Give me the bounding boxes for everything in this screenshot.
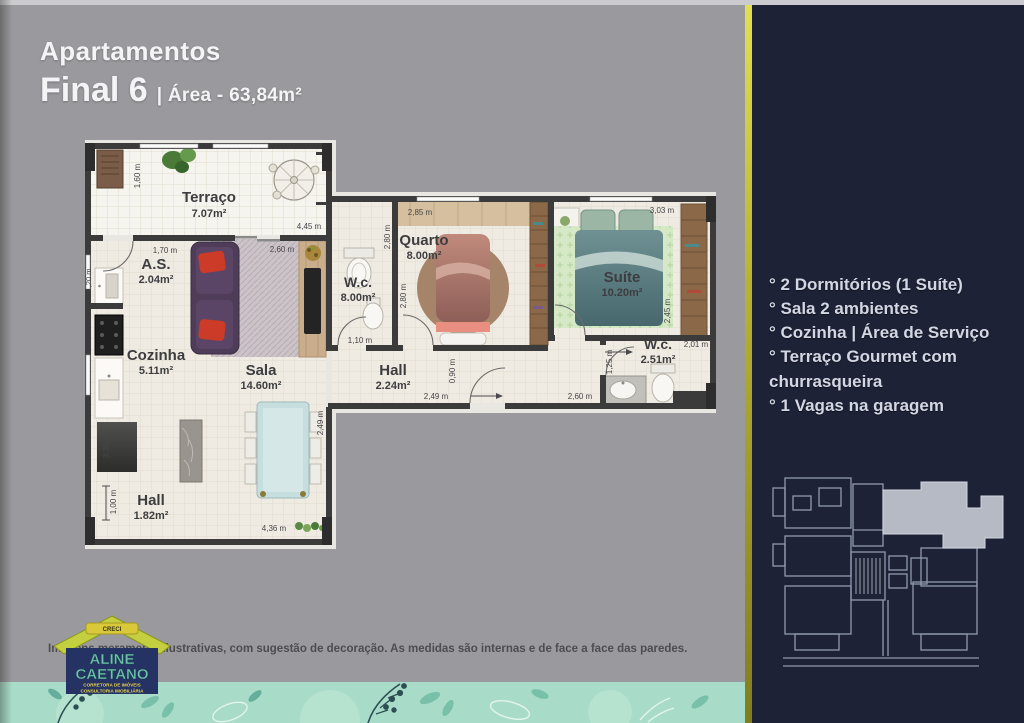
- accent-divider: [745, 5, 752, 723]
- logo-tagline2: CONSULTORIA IMOBILIÁRIA: [81, 688, 145, 694]
- dim-170: 1,70 m: [153, 246, 178, 255]
- agency-logo: CRECI ALINE CAETANO CORRETORA DE IMÓVEIS…: [50, 614, 174, 698]
- dim-260-sala: 2,60 m: [270, 245, 295, 254]
- room-label-hall-intimo: Hall: [379, 362, 407, 379]
- single-bed-icon: [436, 234, 490, 345]
- dim-160: 1,60 m: [133, 163, 142, 188]
- room-area-wc-social: 8.00m²: [341, 292, 376, 304]
- area-label: | Área - 63,84m²: [157, 85, 302, 107]
- unit-label: Final 6: [40, 71, 148, 110]
- logo-tagline1: CORRETORA DE IMÓVEIS: [83, 681, 140, 688]
- plant-icon: [305, 245, 321, 261]
- dim-249-sala: 2,49 m: [316, 410, 325, 435]
- room-label-sala: Sala: [246, 362, 278, 379]
- room-area-terraco: 7.07m²: [192, 208, 227, 220]
- room-label-terraco: Terraço: [182, 189, 236, 206]
- terrace-grill-icon: [97, 150, 123, 188]
- header: Apartamentos Final 6 | Área - 63,84m²: [40, 36, 302, 110]
- dim-280-quarto: 2,80 m: [399, 283, 408, 308]
- room-area-suite: 10.20m²: [602, 287, 643, 299]
- dim-285: 2,85 m: [408, 208, 433, 217]
- logo-name-line2: CAETANO: [75, 666, 148, 683]
- room-label-cozinha: Cozinha: [127, 347, 186, 364]
- room-label-servico: A.S.: [141, 256, 170, 273]
- dim-260-hall: 2,60 m: [568, 392, 593, 401]
- suite-wardrobe-icon: [681, 204, 707, 340]
- dim-110: 1,10 m: [348, 336, 373, 345]
- double-bed-icon: [575, 210, 663, 326]
- dining-table-icon: [245, 402, 321, 498]
- room-area-wc-suite: 2.51m²: [641, 354, 676, 366]
- dim-320: 3,20 m: [102, 433, 111, 458]
- dim-249-hall: 2,49 m: [424, 392, 449, 401]
- laundry-tub-icon: [95, 268, 123, 304]
- feature-item: ° Terraço Gourmet com churrasqueira: [769, 345, 1007, 393]
- dim-125: 1,25 m: [605, 349, 614, 374]
- dim-245: 2,45 m: [663, 298, 672, 323]
- feature-list: ° 2 Dormitórios (1 Suíte) ° Sala 2 ambie…: [769, 273, 1007, 418]
- page-title: Apartamentos: [40, 36, 302, 67]
- dim-436: 4,36 m: [262, 524, 287, 533]
- stove-icon: [95, 315, 123, 355]
- room-area-hall-intimo: 2.24m²: [376, 380, 411, 392]
- highlighted-unit: [883, 482, 1003, 548]
- dim-280-wc: 2,80 m: [383, 224, 392, 249]
- kitchen-sink-icon: [95, 358, 123, 418]
- feature-item: ° Sala 2 ambientes: [769, 297, 1007, 321]
- room-label-wc-social: W.c.: [344, 274, 372, 290]
- room-area-quarto: 8.00m²: [407, 250, 442, 262]
- page: Apartamentos Final 6 | Área - 63,84m²: [0, 0, 1024, 723]
- room-area-servico: 2.04m²: [139, 274, 174, 286]
- feature-item: ° Cozinha | Área de Serviço: [769, 321, 1007, 345]
- dim-201: 2,01 m: [684, 340, 709, 349]
- suite-toilet-icon: [651, 364, 675, 402]
- dim-090: 0,90 m: [448, 358, 457, 383]
- granite-counter-icon: [180, 420, 202, 482]
- dim-120: 1,20 m: [85, 269, 93, 292]
- dim-445: 4,45 m: [297, 222, 322, 231]
- logo-banner-text: CRECI: [103, 627, 122, 633]
- side-panel: ° 2 Dormitórios (1 Suíte) ° Sala 2 ambie…: [752, 5, 1024, 723]
- sofa-icon: [191, 242, 239, 354]
- room-area-sala: 14.60m²: [241, 380, 282, 392]
- left-edge-shadow: [0, 0, 12, 723]
- room-label-hall-entrada: Hall: [137, 492, 165, 509]
- building-key-plan: [763, 460, 1015, 680]
- dim-303: 3,03 m: [650, 206, 675, 215]
- vanity-sink-icon: [604, 376, 646, 404]
- wardrobe-icon: [530, 202, 548, 345]
- feature-item: ° 2 Dormitórios (1 Suíte): [769, 273, 1007, 297]
- room-label-suite: Suíte: [604, 269, 641, 286]
- dim-100: 1,00 m: [109, 489, 118, 514]
- room-area-cozinha: 5.11m²: [139, 365, 174, 377]
- room-label-quarto: Quarto: [399, 232, 448, 249]
- room-area-hall-entrada: 1.82m²: [134, 510, 169, 522]
- room-label-wc-suite: W.c.: [644, 336, 672, 352]
- floorplan: Terraço 7.07m² A.S. 2.04m² Cozinha 5.11m…: [85, 140, 745, 550]
- feature-item: ° 1 Vagas na garagem: [769, 394, 1007, 418]
